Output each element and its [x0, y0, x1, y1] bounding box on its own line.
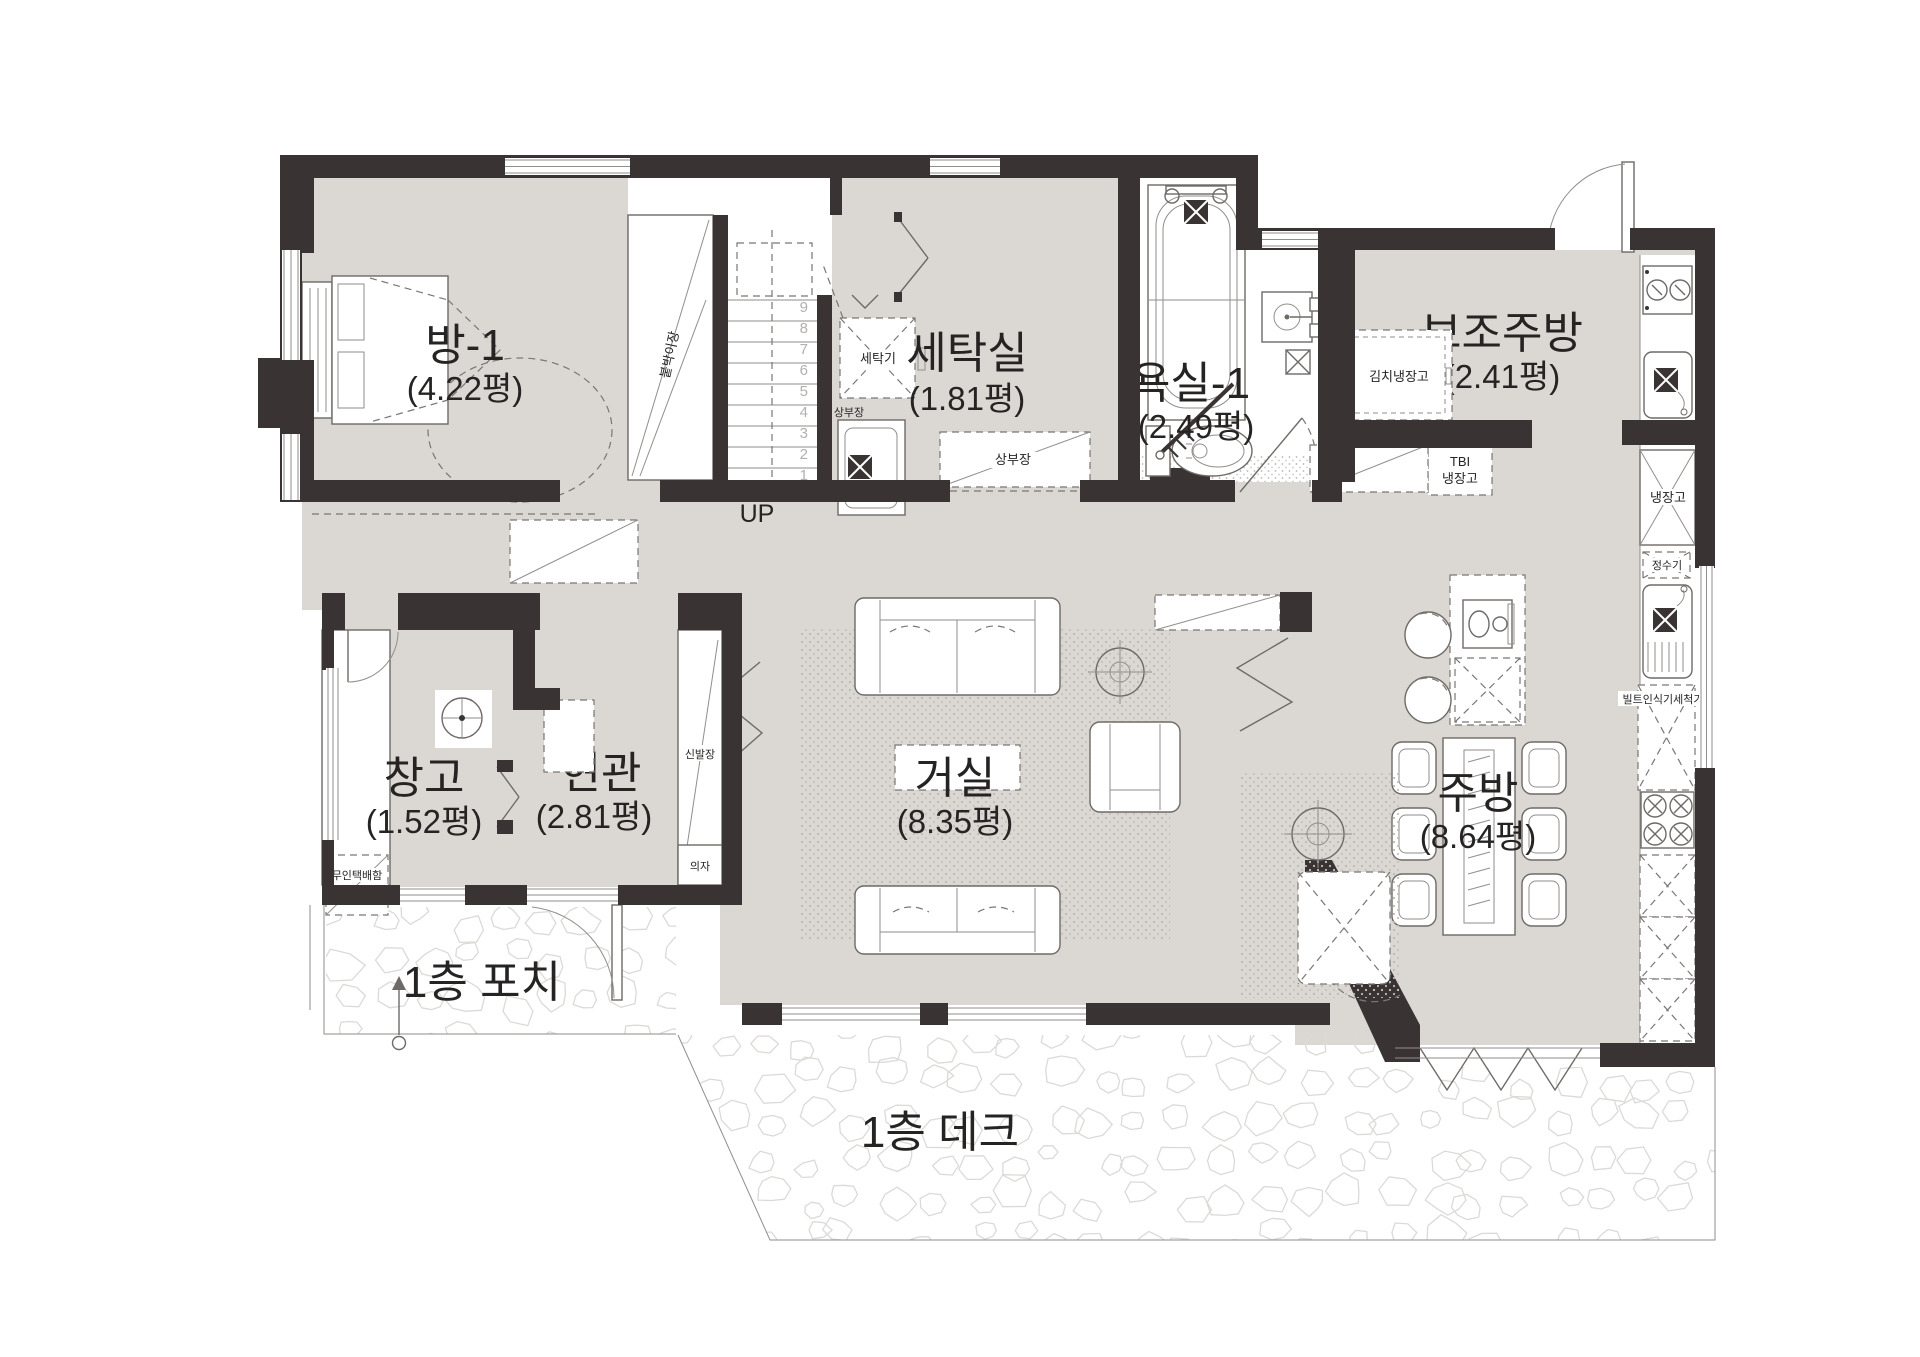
laundry-upper-cabinet: 상부장	[940, 432, 1090, 487]
water-purifier: 정수기	[1643, 552, 1690, 578]
stair-number: 2	[800, 446, 808, 463]
kitchen-label: 주방	[1438, 769, 1519, 818]
laundry-area: (1.81평)	[909, 380, 1026, 417]
reading-nook	[1240, 772, 1400, 998]
stair-number: 4	[800, 404, 808, 421]
purifier-label: 정수기	[1652, 559, 1682, 572]
kitchen-island	[1450, 575, 1525, 725]
washer-label: 세탁기	[860, 351, 896, 366]
window-icon	[282, 250, 300, 360]
window-icon	[527, 887, 618, 903]
bath-vanity-sink	[1262, 292, 1319, 342]
entry-bench[interactable]: 의자	[678, 845, 722, 885]
upper-cabinet-label: 상부장	[834, 406, 864, 419]
room1-area: (4.22평)	[407, 370, 524, 407]
storage-area: (1.52평)	[366, 803, 483, 840]
cabinet-icon	[1640, 855, 1695, 917]
window-icon	[948, 1006, 1086, 1022]
deck-outline	[678, 1035, 1715, 1240]
storage-label: 창고	[384, 754, 465, 803]
sofa-bottom	[855, 886, 1060, 954]
main-sink-icon	[1643, 585, 1692, 678]
living-label: 거실	[915, 754, 996, 803]
porch: 1층 포치	[307, 895, 697, 1063]
bath-label: 욕실-1	[1130, 359, 1250, 408]
stair-up-label: UP	[740, 500, 775, 528]
aux-stove-icon	[1643, 266, 1692, 314]
aux-sink-icon	[1644, 352, 1692, 418]
stair-number: 7	[800, 341, 808, 358]
lower-cabinets	[1640, 855, 1695, 1041]
stair-number: 5	[800, 383, 808, 400]
living-area: (8.35평)	[897, 803, 1014, 840]
tbi-fridge-label2: 냉장고	[1442, 471, 1478, 486]
parcel-box-label: 무인택배함	[332, 869, 383, 882]
sofa-top	[855, 598, 1060, 695]
entrance-area: (2.81평)	[536, 798, 653, 835]
refrigerator: 냉장고	[1640, 450, 1695, 545]
stair-number: 8	[800, 320, 808, 337]
stair-number: 9	[800, 299, 808, 316]
floor-plan-page: 1층 포치 1층 데크 방-1 (4.22평) 붙박이장	[0, 0, 1920, 1357]
stair-number: 6	[800, 362, 808, 379]
bench-label: 의자	[690, 860, 710, 873]
dining-chair[interactable]	[1522, 874, 1566, 926]
aux-entry-door-icon[interactable]	[1548, 162, 1634, 252]
entry-arrow-icon	[392, 976, 406, 1050]
kitchen-area: (8.64평)	[1420, 818, 1537, 855]
window-icon	[930, 158, 1000, 175]
bath-area: (2.49평)	[1138, 408, 1255, 445]
window-icon	[782, 1006, 920, 1022]
deck-connection-icon	[1420, 1048, 1582, 1090]
tbi-fridge: TBI 냉장고	[1428, 445, 1492, 495]
water-heater-icon	[435, 690, 492, 748]
auxkitchen-area: (2.41평)	[1444, 358, 1561, 395]
floor-drain-icon	[1286, 350, 1310, 374]
gas-range-icon	[1641, 792, 1694, 848]
entry-cabinet	[544, 700, 594, 772]
armchair[interactable]	[1090, 722, 1180, 812]
window-icon	[1262, 231, 1318, 248]
deck: 1층 데크	[653, 1016, 1756, 1268]
dishwasher-label: 빌트인식기세척기	[1623, 693, 1704, 706]
porch-label: 1층 포치	[403, 958, 561, 1007]
upper-cabinet2-label: 상부장	[995, 452, 1031, 467]
room1-label: 방-1	[425, 321, 505, 370]
laundry-label: 세탁실	[906, 329, 1027, 378]
window-icon	[326, 668, 340, 840]
window-icon	[282, 434, 300, 500]
window-icon	[400, 887, 465, 903]
tbi-fridge-label1: TBI	[1450, 454, 1470, 469]
floor-plan-drawing: 1층 포치 1층 데크 방-1 (4.22평) 붙박이장	[0, 0, 1920, 1357]
cabinet-icon	[1640, 917, 1695, 979]
window-icon	[505, 158, 630, 175]
deck-label: 1층 데크	[861, 1108, 1019, 1157]
shoe-cabinet-label: 신발장	[685, 748, 715, 761]
kimchi-fridge-label: 김치냉장고	[1369, 369, 1429, 384]
dining-chair[interactable]	[1522, 742, 1566, 794]
closet-builtin: 붙박이장	[628, 215, 713, 480]
window-icon	[1699, 566, 1714, 768]
fridge-label: 냉장고	[1650, 490, 1686, 505]
counter-divider-wall	[1622, 420, 1697, 445]
stair-number: 3	[800, 425, 808, 442]
cabinet-icon	[1640, 979, 1695, 1041]
